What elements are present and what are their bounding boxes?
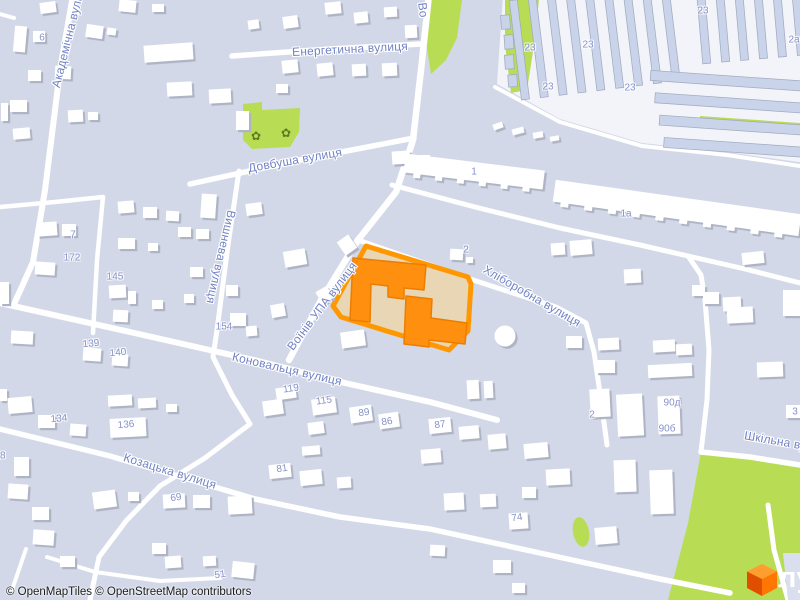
- park-area: [243, 102, 300, 149]
- building: [450, 249, 464, 261]
- building: [109, 285, 127, 299]
- building: [7, 396, 32, 414]
- building: [70, 423, 87, 436]
- building: [484, 381, 494, 398]
- building-block-1a: [552, 180, 800, 240]
- building: [523, 442, 548, 459]
- building: [420, 448, 441, 464]
- road: [93, 197, 103, 333]
- building: [88, 112, 98, 120]
- building: [245, 202, 263, 216]
- building: [62, 224, 76, 236]
- building: [270, 303, 286, 318]
- building: [492, 121, 503, 130]
- building: [382, 63, 398, 77]
- building: [569, 239, 592, 256]
- building: [703, 292, 719, 304]
- building: [1, 103, 8, 121]
- building: [39, 1, 56, 14]
- industrial-building: [501, 15, 511, 30]
- building: [118, 200, 135, 213]
- building: [108, 394, 133, 406]
- road: [0, 14, 14, 18]
- building: [68, 110, 84, 123]
- building: [480, 494, 497, 508]
- building: [230, 313, 246, 326]
- building: [33, 529, 55, 545]
- building: [594, 526, 617, 545]
- building: [37, 221, 58, 236]
- building: [118, 238, 135, 249]
- building: [648, 363, 693, 378]
- building: [512, 583, 525, 593]
- building: [166, 404, 177, 412]
- building: [757, 362, 784, 378]
- building: [13, 26, 27, 53]
- building: [727, 306, 754, 323]
- building: [13, 127, 31, 139]
- building: [184, 294, 194, 303]
- road: [12, 549, 26, 590]
- building: [143, 42, 193, 62]
- building: [112, 353, 129, 366]
- building: [32, 507, 49, 520]
- building: [113, 310, 129, 323]
- map-canvas[interactable]: Академічна вулицяЕнергетична вулицяДовбу…: [0, 0, 800, 600]
- building: [337, 234, 358, 255]
- building: [85, 24, 104, 39]
- map-base-layer: [0, 0, 800, 600]
- building: [546, 468, 571, 485]
- industrial-building: [508, 74, 518, 87]
- building: [353, 11, 368, 23]
- building: [405, 25, 418, 39]
- building: [649, 470, 674, 515]
- building: [163, 493, 186, 508]
- building: [246, 326, 258, 337]
- building: [262, 399, 284, 417]
- building: [282, 15, 299, 29]
- building: [444, 492, 465, 510]
- building: [550, 135, 560, 141]
- building: [283, 248, 307, 268]
- building: [302, 445, 321, 456]
- building: [299, 469, 322, 486]
- building: [148, 243, 158, 251]
- building: [128, 291, 136, 304]
- building: [276, 84, 288, 93]
- building: [281, 59, 298, 74]
- building: [33, 31, 45, 42]
- building: [566, 336, 582, 348]
- road: [190, 138, 414, 184]
- building: [508, 512, 528, 529]
- building: [352, 64, 367, 77]
- building: [167, 81, 193, 96]
- building: [493, 560, 511, 573]
- building: [247, 19, 259, 29]
- building: [107, 27, 117, 35]
- building: [676, 344, 693, 356]
- building: [786, 405, 800, 418]
- building: [166, 211, 180, 222]
- building: [28, 70, 41, 81]
- building: [268, 463, 291, 479]
- building: [349, 405, 373, 424]
- building: [152, 4, 164, 12]
- building: [193, 495, 210, 508]
- building: [533, 131, 544, 139]
- road: [0, 197, 103, 207]
- building: [589, 388, 610, 417]
- building: [275, 386, 296, 401]
- building: [138, 398, 156, 409]
- lun-logo-text: лун: [778, 562, 800, 595]
- building: [430, 545, 446, 557]
- building: [467, 380, 480, 400]
- building: [165, 555, 182, 568]
- building: [203, 556, 217, 567]
- building: [92, 489, 117, 509]
- road: [90, 171, 250, 600]
- building: [14, 457, 29, 476]
- building: [428, 417, 451, 434]
- building: [200, 194, 217, 219]
- building: [316, 62, 333, 77]
- building: [741, 251, 764, 265]
- building: [128, 492, 139, 501]
- lun-logo[interactable]: лун: [716, 558, 800, 600]
- building: [598, 337, 620, 350]
- building: [152, 300, 163, 309]
- road: [0, 429, 730, 593]
- building: [384, 7, 398, 18]
- building: [337, 477, 352, 489]
- road: [701, 300, 709, 452]
- building: [783, 290, 800, 316]
- map-attribution[interactable]: © OpenMapTiles © OpenStreetMap contribut…: [6, 586, 251, 598]
- building: [378, 412, 400, 430]
- building: [118, 0, 136, 13]
- building: [340, 329, 366, 348]
- building: [209, 88, 232, 103]
- building: [236, 111, 249, 130]
- building-block-1: [403, 154, 545, 194]
- building: [596, 360, 615, 373]
- building: [511, 127, 524, 136]
- building: [196, 229, 209, 239]
- round-building: [495, 326, 516, 347]
- building: [311, 396, 337, 415]
- building: [466, 257, 473, 263]
- building: [178, 227, 191, 237]
- building: [38, 415, 55, 428]
- building: [487, 433, 506, 450]
- building: [8, 483, 29, 499]
- building: [226, 285, 238, 296]
- building: [551, 243, 566, 256]
- building: [10, 100, 27, 112]
- industrial-building: [504, 55, 514, 70]
- building: [110, 417, 147, 438]
- building: [0, 389, 7, 401]
- building: [0, 282, 9, 304]
- building: [613, 460, 636, 493]
- building: [55, 66, 72, 80]
- building: [231, 561, 255, 579]
- building: [307, 421, 325, 435]
- building: [653, 339, 676, 352]
- building: [458, 425, 479, 440]
- building: [60, 556, 75, 567]
- building: [143, 207, 157, 218]
- building: [35, 261, 56, 275]
- building: [152, 543, 166, 554]
- tree-area: [571, 516, 592, 548]
- building: [616, 393, 644, 436]
- industrial-building: [504, 35, 514, 50]
- building: [624, 269, 642, 284]
- building: [190, 267, 203, 277]
- building: [522, 487, 536, 498]
- building: [324, 1, 341, 15]
- road: [232, 44, 421, 56]
- building: [11, 330, 34, 344]
- building: [228, 495, 253, 514]
- building: [657, 396, 680, 435]
- building: [83, 347, 102, 361]
